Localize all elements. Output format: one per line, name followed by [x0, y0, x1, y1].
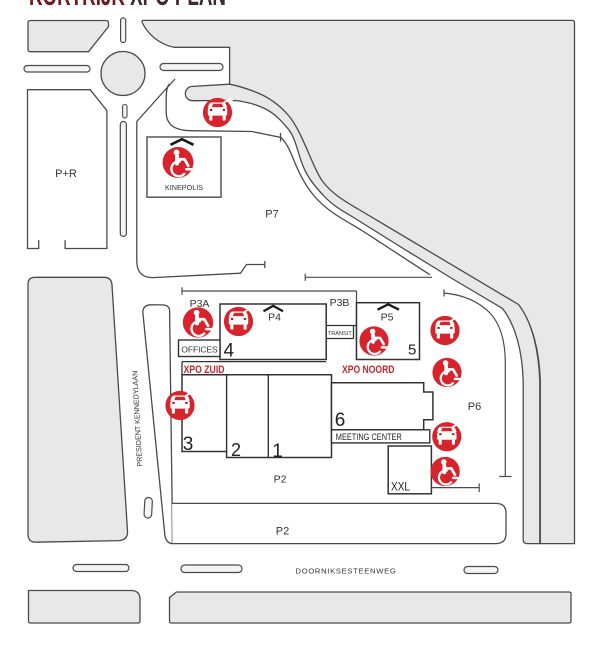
- svg-text:P2: P2: [274, 474, 287, 486]
- svg-text:6: 6: [335, 410, 346, 431]
- svg-text:OFFICES: OFFICES: [181, 345, 218, 355]
- svg-text:MEETING CENTER: MEETING CENTER: [336, 432, 402, 442]
- svg-text:XPO NOORD: XPO NOORD: [342, 364, 395, 376]
- svg-text:TRANSIT: TRANSIT: [328, 331, 353, 337]
- svg-text:P3B: P3B: [330, 297, 350, 309]
- svg-text:P6: P6: [468, 401, 481, 413]
- svg-text:DOORNIKSESTEENWEG: DOORNIKSESTEENWEG: [296, 567, 397, 576]
- svg-text:5: 5: [408, 342, 416, 359]
- svg-text:2: 2: [231, 440, 241, 460]
- svg-text:P5: P5: [381, 312, 394, 324]
- svg-text:KINEPOLIS: KINEPOLIS: [165, 183, 203, 192]
- svg-text:P7: P7: [265, 209, 278, 221]
- svg-text:XXL: XXL: [391, 480, 410, 494]
- svg-text:4: 4: [224, 341, 235, 362]
- svg-text:3: 3: [183, 434, 194, 455]
- svg-text:P+R: P+R: [55, 168, 77, 180]
- svg-text:P4: P4: [268, 312, 281, 324]
- svg-text:1: 1: [272, 441, 283, 462]
- svg-text:P2: P2: [276, 526, 289, 538]
